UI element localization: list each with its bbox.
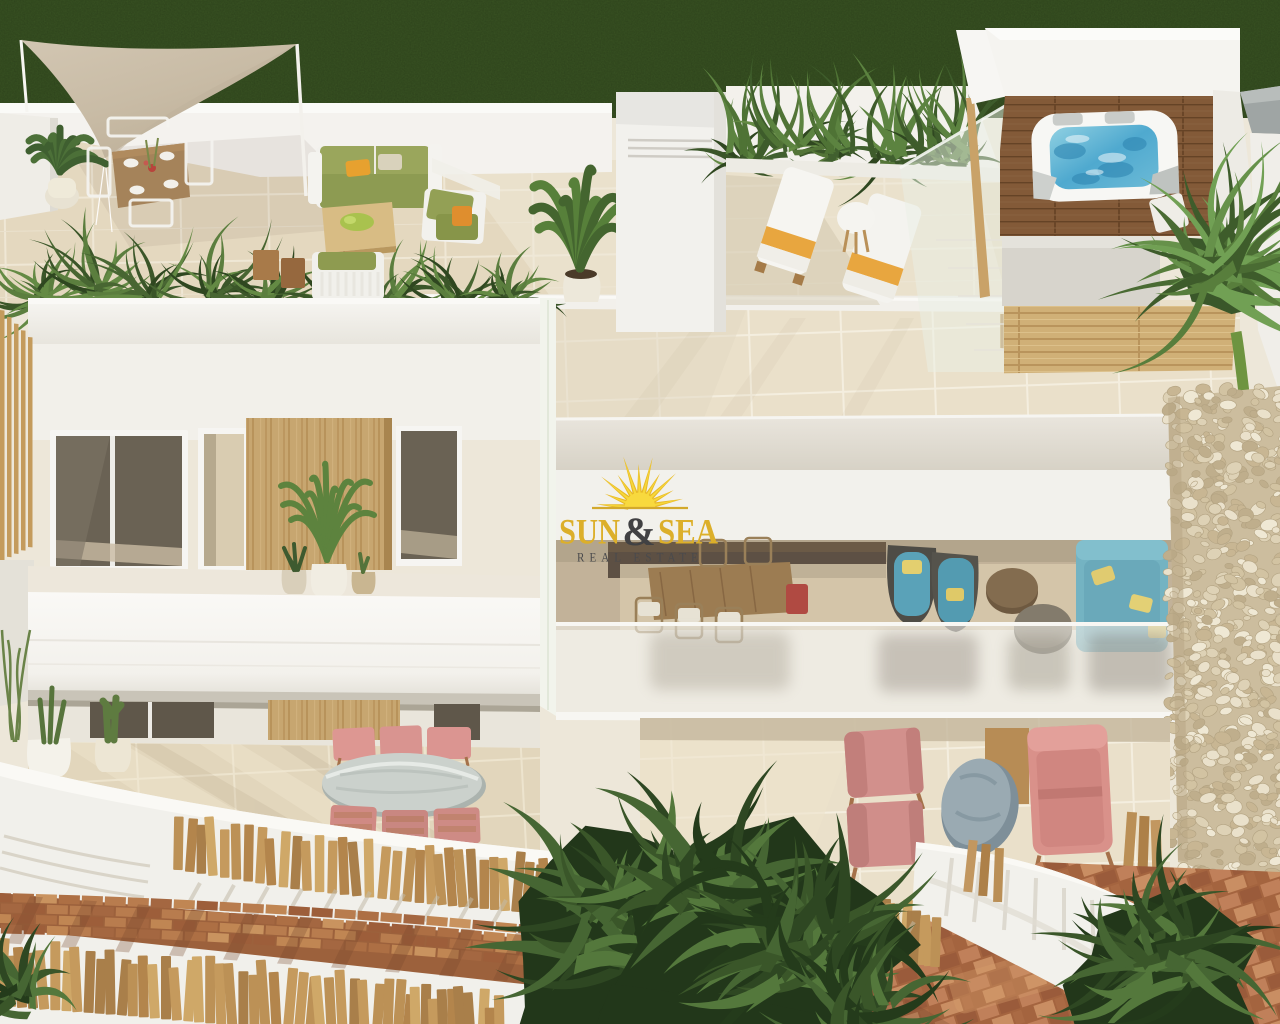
svg-text:SEA: SEA (658, 512, 718, 552)
svg-text:&: & (622, 509, 655, 554)
svg-text:SUN: SUN (559, 512, 620, 552)
svg-text:REAL ESTATE: REAL ESTATE (577, 550, 703, 565)
